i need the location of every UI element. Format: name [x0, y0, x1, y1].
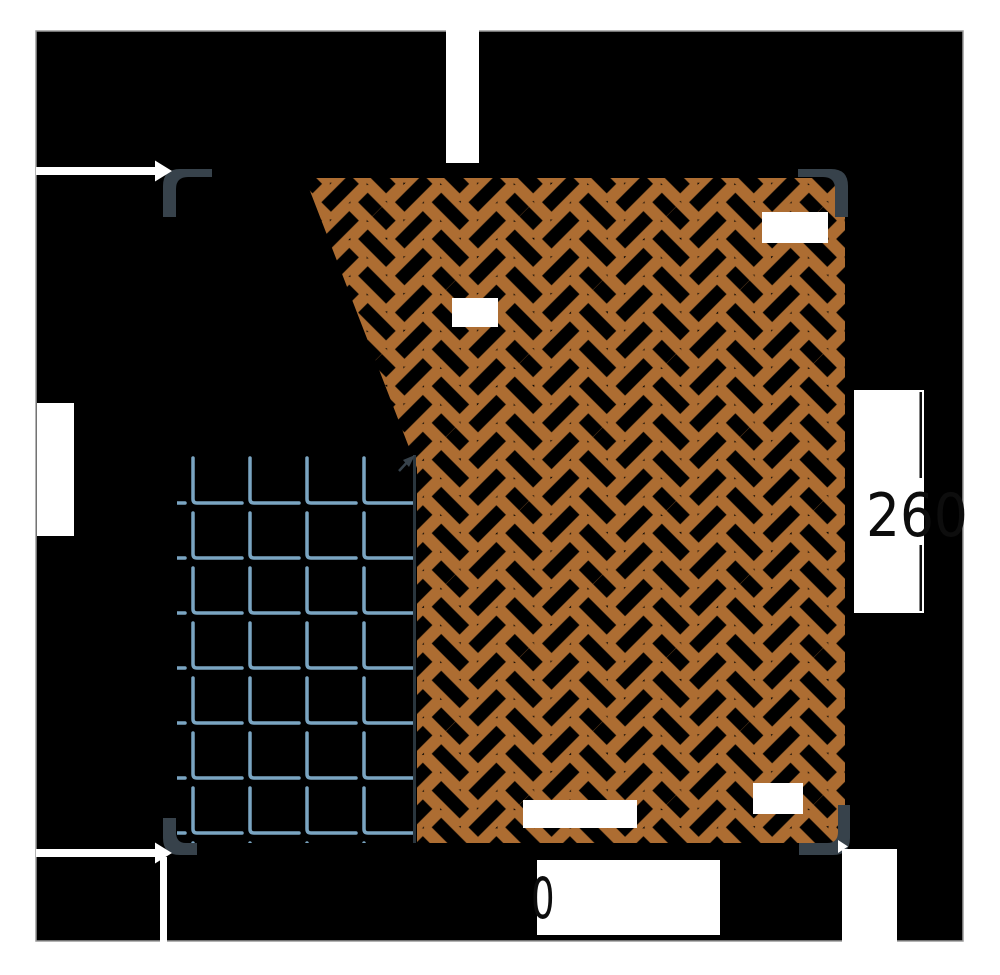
floor-plan-canvas: 260 0	[0, 0, 1000, 975]
floor-plan-page: 260 0	[0, 0, 1000, 975]
dimension-text-right: 260	[866, 481, 968, 551]
empty-label-box	[753, 783, 803, 814]
dimension-label-bottom-box	[537, 860, 720, 935]
empty-label-box	[523, 800, 637, 828]
floor-region-divider	[413, 455, 416, 843]
top-opening-strip	[446, 0, 479, 163]
empty-label-box	[452, 298, 498, 327]
extension-line-bottom-right	[842, 849, 897, 944]
dimension-text-bottom: 0	[531, 866, 555, 932]
empty-label-box	[762, 212, 828, 243]
extension-line-bottom-left	[160, 857, 167, 944]
dimension-line-right-upper	[920, 392, 923, 478]
tile-floor-region	[177, 450, 414, 843]
left-opening-box	[37, 403, 74, 536]
dimension-line-right-lower	[920, 545, 923, 611]
